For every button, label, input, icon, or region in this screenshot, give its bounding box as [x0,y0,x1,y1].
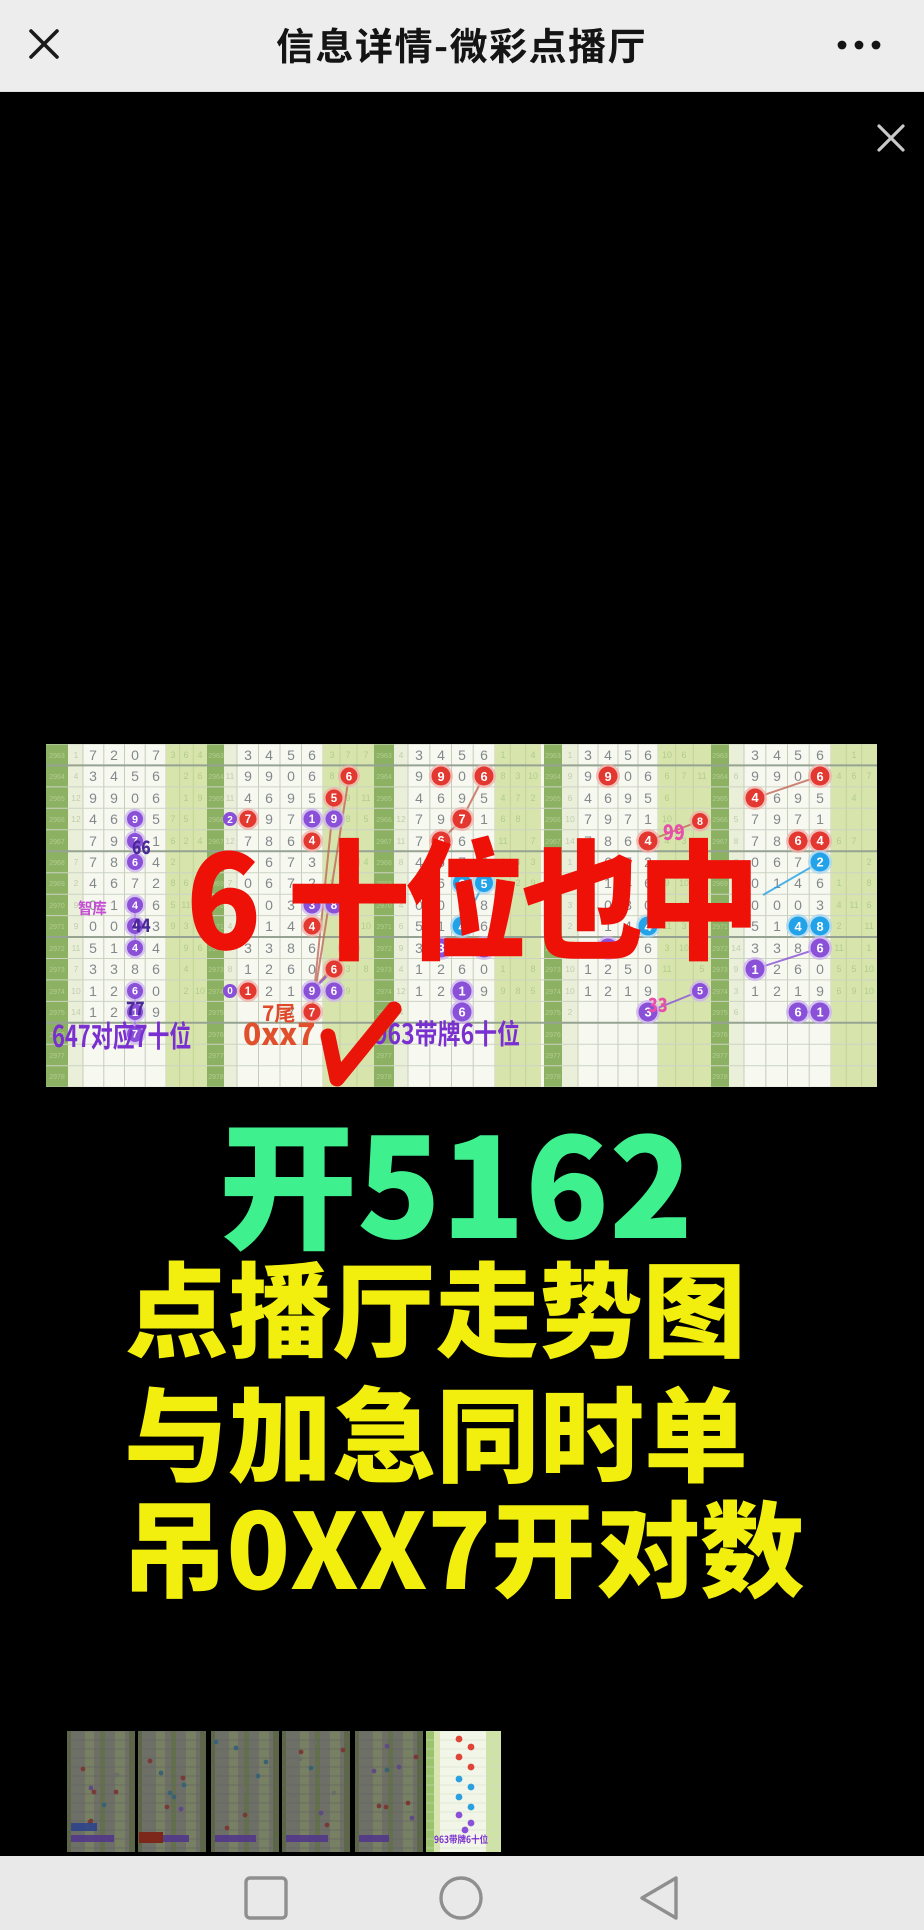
svg-text:9: 9 [170,921,175,931]
svg-text:11: 11 [226,793,235,803]
svg-text:2967: 2967 [49,839,65,846]
svg-text:6: 6 [851,771,856,781]
svg-text:2: 2 [170,857,175,867]
svg-text:3: 3 [515,771,520,781]
svg-text:4: 4 [851,793,856,803]
svg-text:3: 3 [89,961,97,977]
svg-text:6: 6 [816,940,823,955]
svg-text:3: 3 [244,747,252,763]
svg-text:6: 6 [624,833,632,849]
svg-text:0: 0 [751,854,759,870]
svg-text:2966: 2966 [545,817,561,824]
svg-text:4: 4 [584,790,592,806]
svg-text:2973: 2973 [208,967,224,974]
svg-text:9: 9 [734,964,739,974]
svg-text:9: 9 [74,900,79,910]
svg-text:8: 8 [265,833,273,849]
svg-text:9: 9 [458,790,466,806]
svg-text:4: 4 [500,793,505,803]
svg-text:7: 7 [89,833,97,849]
svg-text:11: 11 [662,964,671,974]
svg-text:1: 1 [500,750,505,760]
svg-text:6: 6 [287,833,295,849]
svg-text:8: 8 [480,897,488,913]
svg-text:6: 6 [170,836,175,846]
svg-text:1: 1 [152,833,160,849]
svg-text:6: 6 [480,918,488,934]
svg-text:4: 4 [132,900,138,912]
svg-text:4: 4 [415,790,423,806]
svg-text:6: 6 [568,793,573,803]
svg-text:1: 1 [866,943,871,953]
svg-text:2974: 2974 [208,989,224,996]
svg-text:9: 9 [604,769,611,784]
svg-text:10: 10 [565,964,575,974]
svg-text:2974: 2974 [712,989,728,996]
svg-text:6: 6 [458,833,466,849]
svg-text:6: 6 [346,771,352,783]
svg-text:7: 7 [794,854,802,870]
svg-text:7: 7 [415,811,423,827]
svg-text:2972: 2972 [712,946,728,953]
svg-text:3: 3 [329,750,334,760]
svg-text:3: 3 [773,940,781,956]
svg-text:7: 7 [245,814,251,826]
svg-text:6: 6 [836,836,841,846]
svg-text:5: 5 [624,747,632,763]
svg-text:5: 5 [851,964,856,974]
svg-text:2970: 2970 [376,903,392,910]
svg-text:7: 7 [751,833,759,849]
svg-text:6: 6 [287,961,295,977]
svg-text:2: 2 [604,983,612,999]
svg-text:6: 6 [265,790,273,806]
svg-text:9: 9 [399,943,404,953]
svg-text:2968: 2968 [49,860,65,867]
svg-text:2: 2 [530,793,535,803]
svg-text:9: 9 [110,833,118,849]
svg-text:3: 3 [308,854,316,870]
svg-text:11: 11 [226,771,235,781]
svg-text:2: 2 [816,855,823,870]
svg-text:4: 4 [309,922,316,934]
svg-text:2967: 2967 [712,839,728,846]
svg-text:1: 1 [751,983,759,999]
svg-text:3: 3 [415,940,423,956]
svg-text:2977: 2977 [376,1053,392,1060]
svg-text:7: 7 [89,854,97,870]
svg-text:2967: 2967 [545,839,561,846]
svg-text:6: 6 [480,747,488,763]
svg-text:8: 8 [287,940,295,956]
svg-text:2: 2 [265,961,273,977]
svg-text:2: 2 [183,986,188,996]
svg-text:3: 3 [751,940,759,956]
svg-text:2974: 2974 [545,989,561,996]
svg-text:2964: 2964 [376,774,392,781]
svg-text:2975: 2975 [49,1010,65,1017]
svg-text:5: 5 [308,790,316,806]
svg-text:9: 9 [74,921,79,931]
svg-text:7: 7 [132,1029,138,1041]
svg-text:4: 4 [265,747,273,763]
svg-text:7: 7 [170,814,175,824]
svg-text:3: 3 [644,1005,651,1020]
svg-text:2: 2 [437,961,445,977]
svg-text:2973: 2973 [376,967,392,974]
svg-text:2978: 2978 [376,1074,392,1081]
svg-text:6: 6 [480,769,487,784]
svg-text:9: 9 [568,771,573,781]
svg-text:4: 4 [399,964,404,974]
svg-text:0: 0 [244,875,252,891]
svg-text:5: 5 [480,790,488,806]
svg-text:2: 2 [437,983,445,999]
svg-text:10: 10 [565,986,575,996]
svg-text:6: 6 [644,768,652,784]
svg-text:2964: 2964 [49,774,65,781]
svg-text:8: 8 [866,878,871,888]
svg-text:5: 5 [530,986,535,996]
svg-text:2968: 2968 [376,860,392,867]
svg-text:2976: 2976 [208,1032,224,1039]
svg-text:7: 7 [131,875,139,891]
svg-text:7: 7 [152,747,160,763]
svg-text:0: 0 [227,986,233,997]
svg-text:8: 8 [604,833,612,849]
svg-text:1: 1 [245,986,252,998]
svg-text:2: 2 [110,1004,118,1020]
svg-text:2963: 2963 [376,753,392,760]
svg-text:9: 9 [624,790,632,806]
svg-text:2965: 2965 [208,796,224,803]
svg-text:2: 2 [568,921,573,931]
svg-text:11: 11 [849,900,858,910]
svg-text:6: 6 [604,790,612,806]
svg-text:6: 6 [644,747,652,763]
svg-text:6: 6 [866,900,871,910]
svg-text:2975: 2975 [208,1010,224,1017]
svg-text:2966: 2966 [49,817,65,824]
svg-text:4: 4 [794,919,802,934]
svg-text:3: 3 [89,768,97,784]
svg-text:9: 9 [773,768,781,784]
svg-text:7: 7 [309,1007,315,1019]
svg-text:9: 9 [197,793,202,803]
svg-text:8: 8 [345,814,350,824]
svg-text:10: 10 [528,771,538,781]
svg-text:1: 1 [751,962,758,977]
svg-text:2978: 2978 [208,1074,224,1081]
svg-text:8: 8 [515,986,520,996]
svg-text:4: 4 [399,750,404,760]
svg-text:1: 1 [309,814,316,826]
svg-text:5: 5 [458,747,466,763]
svg-text:11: 11 [697,771,706,781]
svg-text:2: 2 [866,857,871,867]
svg-text:2973: 2973 [712,967,728,974]
svg-text:9: 9 [244,768,252,784]
svg-text:4: 4 [152,854,160,870]
svg-text:6: 6 [197,943,202,953]
svg-text:8: 8 [399,857,404,867]
svg-text:1: 1 [816,1005,823,1020]
svg-text:6: 6 [152,897,160,913]
svg-text:3: 3 [152,918,160,934]
svg-text:0: 0 [773,897,781,913]
svg-text:7: 7 [515,793,520,803]
svg-text:2963: 2963 [545,753,561,760]
svg-text:0: 0 [624,768,632,784]
svg-text:9: 9 [132,814,138,826]
svg-text:8: 8 [773,833,781,849]
svg-text:7: 7 [363,750,368,760]
svg-text:1: 1 [568,750,573,760]
svg-text:7: 7 [794,811,802,827]
svg-text:6: 6 [816,875,824,891]
svg-text:9: 9 [331,814,337,826]
svg-text:10: 10 [864,964,874,974]
svg-text:2975: 2975 [545,1010,561,1017]
svg-text:11: 11 [397,836,406,846]
svg-text:10: 10 [71,986,81,996]
svg-text:2964: 2964 [208,774,224,781]
svg-text:2974: 2974 [49,989,65,996]
svg-text:2966: 2966 [376,817,392,824]
svg-text:9: 9 [604,811,612,827]
svg-text:4: 4 [530,750,535,760]
svg-text:4: 4 [228,921,233,931]
svg-text:6: 6 [681,750,686,760]
svg-text:0: 0 [644,961,652,977]
svg-text:4: 4 [773,747,781,763]
svg-text:3: 3 [110,961,118,977]
svg-text:0: 0 [794,897,802,913]
svg-text:9: 9 [152,1004,160,1020]
svg-text:4: 4 [287,918,295,934]
svg-text:10: 10 [864,986,874,996]
svg-text:4: 4 [132,943,138,955]
svg-text:0: 0 [480,961,488,977]
svg-text:1: 1 [415,961,423,977]
svg-text:5: 5 [624,961,632,977]
svg-text:2976: 2976 [545,1032,561,1039]
svg-text:6: 6 [152,790,160,806]
svg-text:3: 3 [530,857,535,867]
svg-text:2969: 2969 [49,881,65,888]
svg-text:9: 9 [309,986,315,998]
svg-text:6: 6 [664,793,669,803]
svg-text:8: 8 [329,771,334,781]
svg-text:6: 6 [265,875,273,891]
svg-text:7: 7 [287,811,295,827]
svg-text:2977: 2977 [545,1053,561,1060]
svg-text:7: 7 [228,878,233,888]
svg-text:14: 14 [565,836,575,846]
svg-text:11: 11 [864,921,873,931]
svg-text:2964: 2964 [545,774,561,781]
svg-text:9: 9 [437,769,444,784]
svg-text:0: 0 [816,961,824,977]
svg-text:9: 9 [500,986,505,996]
svg-text:3: 3 [664,943,669,953]
svg-text:1: 1 [584,983,592,999]
svg-text:2: 2 [110,747,118,763]
svg-text:1: 1 [773,918,781,934]
svg-text:2963: 2963 [208,753,224,760]
svg-text:3: 3 [170,750,175,760]
svg-text:3: 3 [415,747,423,763]
svg-text:12: 12 [71,814,81,824]
svg-text:2975: 2975 [712,1010,728,1017]
svg-text:0: 0 [110,918,118,934]
svg-text:2976: 2976 [712,1032,728,1039]
svg-text:1: 1 [624,983,632,999]
svg-text:9: 9 [110,790,118,806]
svg-text:2967: 2967 [376,839,392,846]
svg-text:7: 7 [751,811,759,827]
svg-text:3: 3 [584,747,592,763]
svg-text:5: 5 [89,940,97,956]
svg-text:6: 6 [458,1005,465,1020]
svg-text:2963: 2963 [712,753,728,760]
svg-text:2978: 2978 [712,1074,728,1081]
svg-text:2: 2 [773,983,781,999]
svg-text:1: 1 [480,811,488,827]
svg-text:3: 3 [568,900,573,910]
svg-text:8: 8 [734,836,739,846]
svg-text:8: 8 [530,964,535,974]
svg-text:4: 4 [604,747,612,763]
svg-text:0: 0 [131,747,139,763]
svg-text:2966: 2966 [208,817,224,824]
svg-text:4: 4 [836,771,841,781]
svg-text:6: 6 [836,986,841,996]
svg-text:1: 1 [89,1004,97,1020]
svg-text:5: 5 [697,986,703,998]
svg-text:3: 3 [751,747,759,763]
svg-text:11: 11 [361,793,370,803]
svg-text:6: 6 [773,854,781,870]
svg-text:1: 1 [851,750,856,760]
svg-text:10: 10 [195,986,205,996]
svg-text:9: 9 [287,790,295,806]
svg-text:6: 6 [308,940,316,956]
svg-text:8: 8 [170,878,175,888]
svg-text:8: 8 [500,771,505,781]
svg-text:2: 2 [568,1007,573,1017]
svg-text:3: 3 [345,964,350,974]
svg-text:7: 7 [89,747,97,763]
svg-text:2965: 2965 [49,796,65,803]
svg-text:6: 6 [308,768,316,784]
svg-text:1: 1 [89,983,97,999]
svg-text:2966: 2966 [712,817,728,824]
svg-text:6: 6 [132,986,138,998]
svg-text:2: 2 [265,983,273,999]
svg-text:0: 0 [152,983,160,999]
svg-text:2965: 2965 [545,796,561,803]
svg-text:10: 10 [662,814,672,824]
svg-text:11: 11 [834,943,843,953]
svg-text:5: 5 [751,918,759,934]
svg-text:0: 0 [751,897,759,913]
svg-text:11: 11 [498,836,507,846]
svg-text:7: 7 [345,750,350,760]
svg-text:6: 6 [183,750,188,760]
svg-text:6: 6 [152,961,160,977]
svg-text:2977: 2977 [712,1053,728,1060]
svg-text:5: 5 [152,811,160,827]
svg-text:9: 9 [265,811,273,827]
svg-text:6: 6 [110,811,118,827]
svg-text:10: 10 [565,814,575,824]
svg-text:1: 1 [110,940,118,956]
svg-text:4: 4 [836,900,841,910]
svg-text:7: 7 [244,833,252,849]
svg-text:6: 6 [794,833,801,848]
svg-text:14: 14 [731,943,741,953]
svg-text:1: 1 [584,961,592,977]
svg-text:7: 7 [584,811,592,827]
svg-text:5: 5 [131,768,139,784]
svg-text:7: 7 [74,857,79,867]
svg-text:2973: 2973 [49,967,65,974]
svg-text:5: 5 [481,877,488,891]
svg-text:6: 6 [734,771,739,781]
svg-text:10: 10 [361,921,371,931]
svg-text:1: 1 [74,750,79,760]
svg-text:0: 0 [89,918,97,934]
svg-text:2973: 2973 [545,967,561,974]
svg-text:2970: 2970 [49,903,65,910]
svg-text:2965: 2965 [712,796,728,803]
svg-text:0: 0 [265,897,273,913]
svg-text:5: 5 [331,793,338,805]
svg-text:3: 3 [265,940,273,956]
svg-text:2967: 2967 [208,839,224,846]
svg-text:12: 12 [71,793,81,803]
svg-text:3: 3 [734,986,739,996]
svg-text:6: 6 [794,961,802,977]
svg-text:9: 9 [773,811,781,827]
svg-text:6: 6 [458,961,466,977]
svg-text:1: 1 [500,964,505,974]
svg-text:6: 6 [664,771,669,781]
svg-text:4: 4 [152,940,160,956]
svg-text:7: 7 [681,771,686,781]
svg-text:1: 1 [287,983,295,999]
svg-text:6: 6 [500,814,505,824]
svg-text:7: 7 [851,836,856,846]
svg-text:1: 1 [458,983,465,998]
svg-text:1: 1 [816,811,824,827]
svg-text:6: 6 [331,964,337,976]
svg-text:9: 9 [816,983,824,999]
svg-text:9: 9 [89,790,97,806]
svg-text:4: 4 [309,836,316,848]
svg-text:2964: 2964 [712,774,728,781]
svg-text:7: 7 [74,964,79,974]
svg-text:2978: 2978 [545,1074,561,1081]
svg-text:1: 1 [415,983,423,999]
svg-text:1: 1 [794,983,802,999]
svg-text:2: 2 [604,961,612,977]
svg-text:4: 4 [644,833,652,848]
svg-text:7: 7 [530,836,535,846]
svg-text:9: 9 [584,768,592,784]
svg-text:2977: 2977 [208,1053,224,1060]
